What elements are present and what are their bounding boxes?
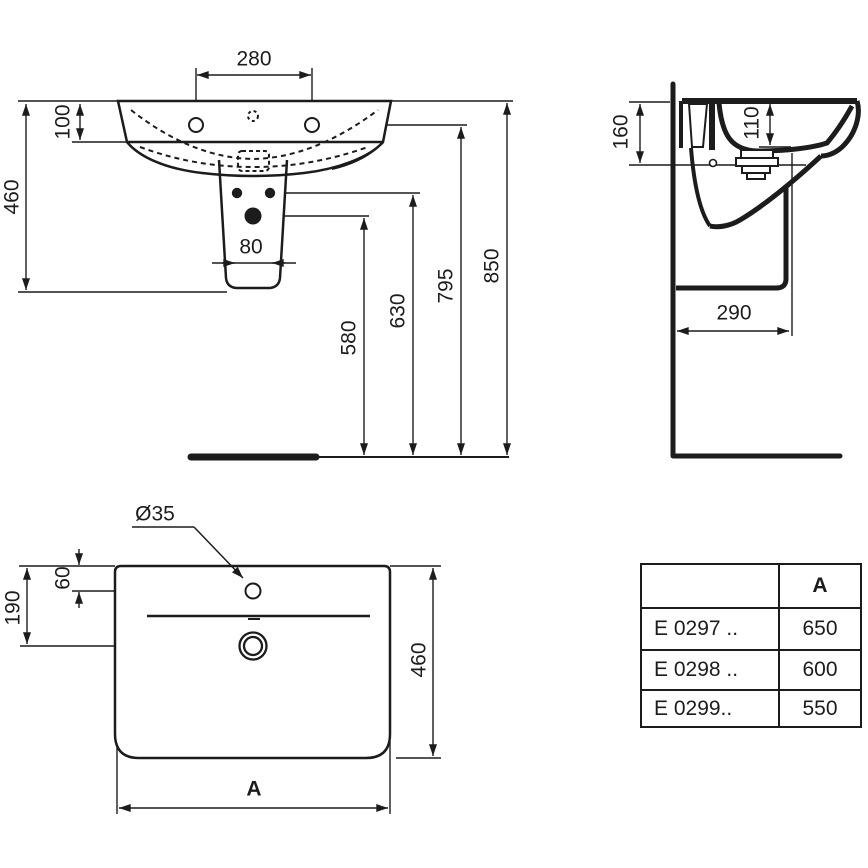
- dim-label-190: 190: [2, 590, 25, 625]
- dim-label-280: 280: [236, 48, 271, 71]
- side-view: 160 110 290: [610, 84, 859, 456]
- waste-trap: [736, 150, 778, 179]
- basin-top-outline: [115, 566, 390, 758]
- table-header-A: A: [778, 565, 860, 607]
- table-model-3: E 0299..: [642, 689, 778, 726]
- dim-label-160: 160: [610, 114, 633, 149]
- dim-label-290: 290: [716, 302, 751, 325]
- dim-label-795: 795: [435, 268, 458, 303]
- table-size-1: 650: [778, 607, 860, 649]
- side-dimension-labels: 160 110 290: [610, 106, 764, 324]
- table-model-1: E 0297 ..: [642, 607, 778, 649]
- front-view: 280 100 460 80 580 630 795 850: [1, 48, 514, 458]
- dim-label-100: 100: [52, 104, 75, 139]
- dim-label-460-front: 460: [1, 179, 24, 214]
- top-view: Ø35 60 190 460 A: [2, 503, 442, 815]
- dim-label-580: 580: [338, 320, 361, 355]
- pedestal-drain-hole: [245, 208, 262, 225]
- table-size-3: 550: [778, 689, 860, 726]
- model-size-table: A E 0297 .. 650 E 0298 .. 600 E 0299.. 5…: [640, 563, 862, 728]
- dim-label-dia35: Ø35: [135, 503, 175, 526]
- dim-label-80: 80: [239, 236, 262, 259]
- table-size-2: 600: [778, 649, 860, 689]
- technical-drawing-page: 280 100 460 80 580 630 795 850: [0, 0, 868, 868]
- pedestal-fixing-hole-left: [232, 188, 242, 198]
- table-model-2: E 0298 ..: [642, 649, 778, 689]
- fixing-hole-side: [710, 160, 717, 167]
- dim-label-460-top: 460: [408, 642, 431, 677]
- pedestal-fixing-hole-right: [265, 188, 275, 198]
- dim-label-850: 850: [481, 248, 504, 283]
- dim-label-60: 60: [52, 566, 75, 589]
- dim-label-A: A: [246, 778, 261, 801]
- dim-label-110: 110: [741, 106, 764, 139]
- table-header-model: [642, 565, 778, 607]
- dim-label-630: 630: [387, 293, 410, 328]
- drawing-canvas: 280 100 460 80 580 630 795 850: [0, 0, 868, 868]
